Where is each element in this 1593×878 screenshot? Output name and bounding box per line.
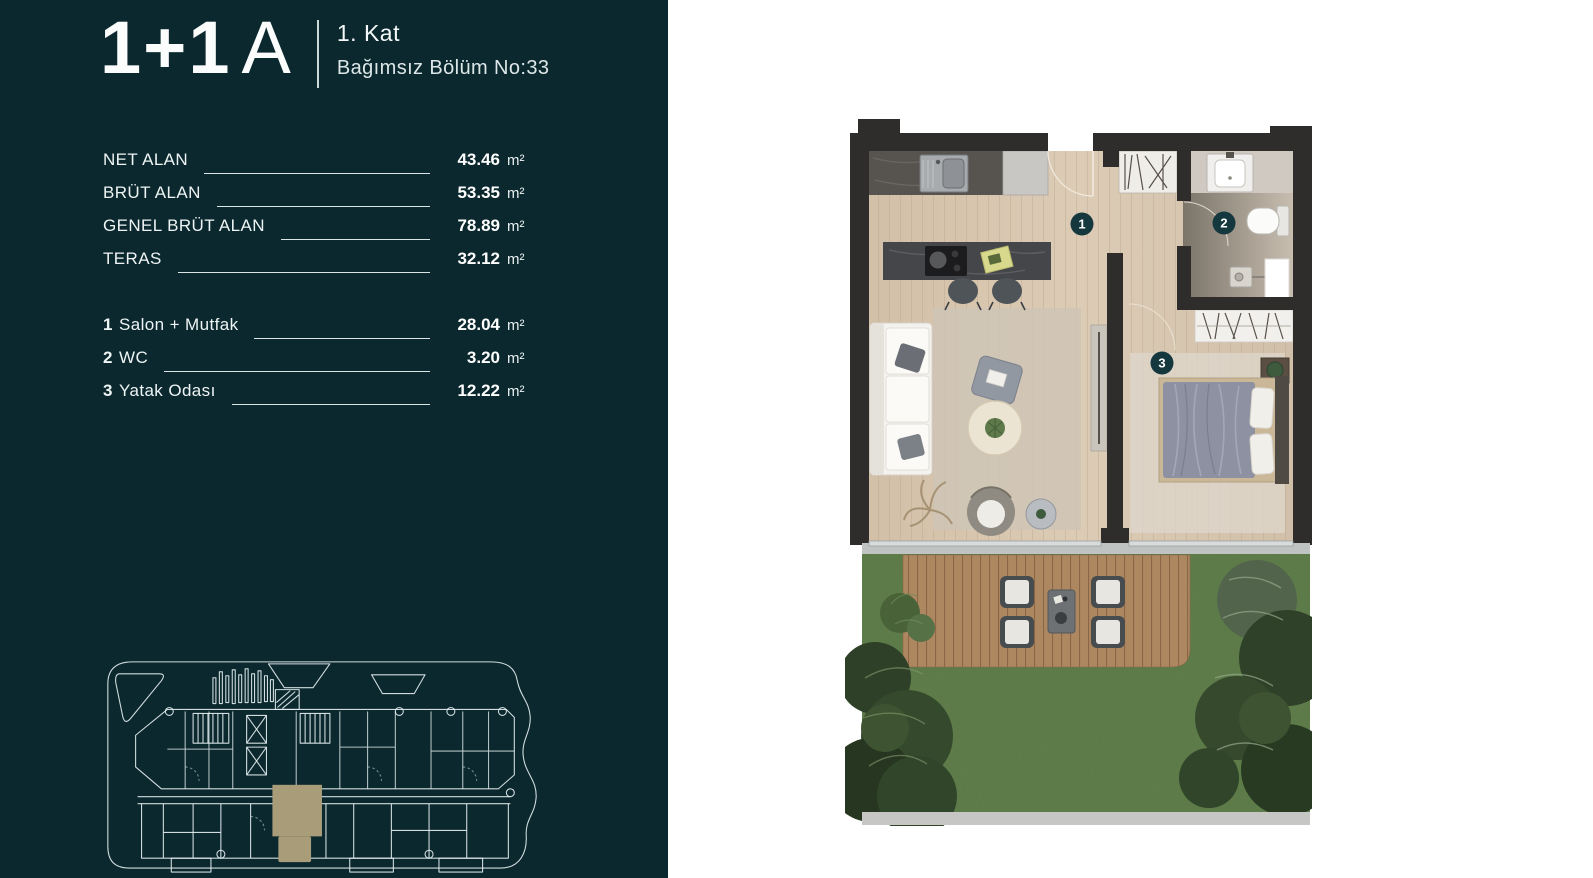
area-label: BRÜT ALAN [103, 183, 201, 203]
outdoor-chair [1000, 616, 1034, 648]
garden [845, 543, 1312, 826]
room-row: 3 Yatak Odası 12.22 m² [103, 381, 535, 414]
entry-closet [1119, 151, 1177, 193]
area-unit: m² [507, 185, 535, 202]
room-marker-1: 1 [1071, 213, 1094, 236]
building-key-plan [100, 648, 540, 878]
keyplan-canopy [372, 675, 426, 694]
room-label: WC [119, 348, 148, 368]
room-row: 2 WC 3.20 m² [103, 348, 535, 381]
title-block: 1+1A 1. Kat Bağımsız Bölüm No:33 [100, 12, 549, 88]
keyplan-highlighted-unit [272, 785, 322, 862]
keyplan-stairs [275, 690, 299, 710]
title-meta: 1. Kat Bağımsız Bölüm No:33 [337, 12, 550, 80]
page: 1+1A 1. Kat Bağımsız Bölüm No:33 NET ALA… [0, 0, 1593, 878]
keyplan-unit-lines [167, 711, 514, 788]
terrace-deck [903, 555, 1190, 667]
floor-label: 1. Kat [337, 20, 550, 47]
room-marker-3: 3 [1151, 352, 1174, 375]
room-number: 3 [103, 381, 119, 401]
outdoor-table [1048, 590, 1075, 633]
area-value: 43.46 [444, 150, 500, 170]
area-label: TERAS [103, 249, 162, 269]
room-unit: m² [507, 317, 535, 334]
bedroom-wardrobe [1195, 310, 1293, 342]
room-label: Yatak Odası [119, 381, 216, 401]
unit-type: 1+1 [100, 6, 232, 89]
side-table [1026, 499, 1056, 529]
kitchen-island [883, 242, 1051, 280]
toilet [1247, 206, 1289, 236]
room-value: 12.22 [444, 381, 500, 401]
room-value: 3.20 [444, 348, 500, 368]
wall-niche [1265, 259, 1289, 299]
floor-plan: 1 2 3 [845, 118, 1312, 826]
area-value: 32.12 [444, 249, 500, 269]
coffee-table [968, 401, 1022, 455]
unit-variant: A [242, 6, 293, 89]
bathroom-sink [1207, 152, 1253, 192]
kitchen-cabinet [1003, 151, 1048, 195]
leader-line [281, 239, 430, 240]
room-number: 1 [103, 315, 119, 335]
room-number: 2 [103, 348, 119, 368]
area-unit: m² [507, 251, 535, 268]
area-value: 53.35 [444, 183, 500, 203]
unit-type-title: 1+1A [100, 12, 293, 84]
keyplan-canopy [268, 664, 329, 688]
outdoor-chair [1091, 616, 1125, 648]
area-row: BRÜT ALAN 53.35 m² [103, 183, 535, 216]
keyplan-corner-shape [116, 674, 164, 722]
leader-line [204, 173, 430, 174]
garden-bottom-walkway [862, 812, 1310, 825]
leader-line [232, 404, 430, 405]
area-unit: m² [507, 218, 535, 235]
bed [1159, 376, 1289, 484]
room-unit: m² [507, 383, 535, 400]
room-marker-2-number: 2 [1220, 216, 1227, 231]
area-summary-list: NET ALAN 43.46 m² BRÜT ALAN 53.35 m² GEN… [103, 150, 535, 282]
room-label: Salon + Mutfak [119, 315, 238, 335]
sofa [870, 323, 932, 475]
outdoor-chair [1091, 576, 1125, 608]
kitchen-sink [920, 155, 968, 192]
area-label: GENEL BRÜT ALAN [103, 216, 265, 236]
cooktop [925, 246, 967, 276]
keyplan-elevators [247, 715, 267, 774]
area-row: GENEL BRÜT ALAN 78.89 m² [103, 216, 535, 249]
armchair [967, 487, 1015, 536]
room-marker-2: 2 [1213, 212, 1236, 235]
area-label: NET ALAN [103, 150, 188, 170]
keyplan-door-arcs [185, 767, 476, 830]
keyplan-stair-hatch [193, 713, 330, 743]
unit-number-label: Bağımsız Bölüm No:33 [337, 57, 550, 80]
room-value: 28.04 [444, 315, 500, 335]
room-list: 1 Salon + Mutfak 28.04 m² 2 WC 3.20 m² 3… [103, 315, 535, 414]
outdoor-chair [1000, 576, 1034, 608]
leader-line [164, 371, 430, 372]
leader-line [254, 338, 430, 339]
area-value: 78.89 [444, 216, 500, 236]
room-unit: m² [507, 350, 535, 367]
leader-line [178, 272, 430, 273]
area-row: NET ALAN 43.46 m² [103, 150, 535, 183]
terrace-glass-doors [862, 541, 1310, 554]
keyplan-louvers [213, 669, 273, 704]
tv-sideboard [1091, 325, 1107, 451]
title-divider [317, 20, 319, 88]
area-unit: m² [507, 152, 535, 169]
area-row: TERAS 32.12 m² [103, 249, 535, 282]
leader-line [217, 206, 430, 207]
keyplan-boundary [108, 662, 536, 868]
sidebar: 1+1A 1. Kat Bağımsız Bölüm No:33 NET ALA… [0, 0, 668, 878]
room-row: 1 Salon + Mutfak 28.04 m² [103, 315, 535, 348]
keyplan-lower-units [142, 804, 509, 872]
room-marker-1-number: 1 [1078, 217, 1085, 232]
room-marker-3-number: 3 [1158, 356, 1165, 371]
